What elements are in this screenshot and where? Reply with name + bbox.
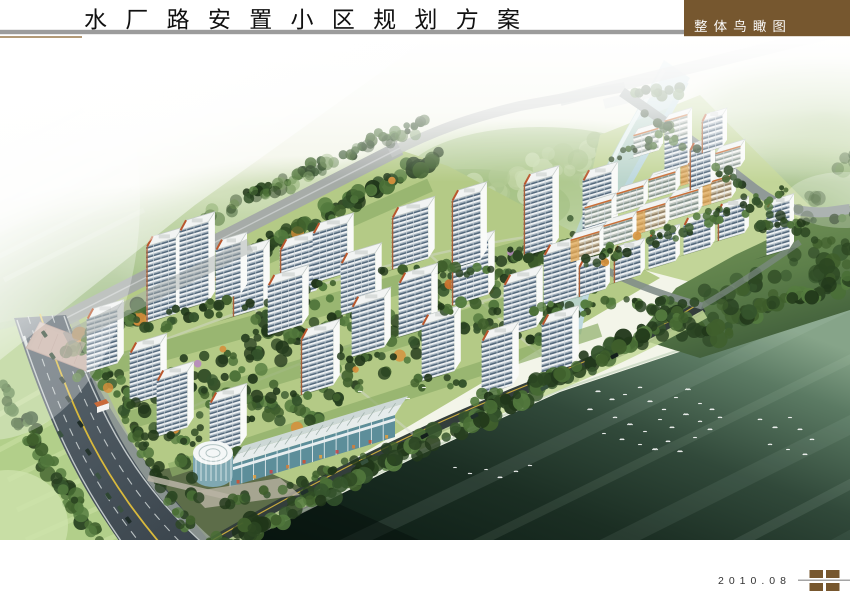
svg-text:2010.08: 2010.08 <box>718 575 791 587</box>
